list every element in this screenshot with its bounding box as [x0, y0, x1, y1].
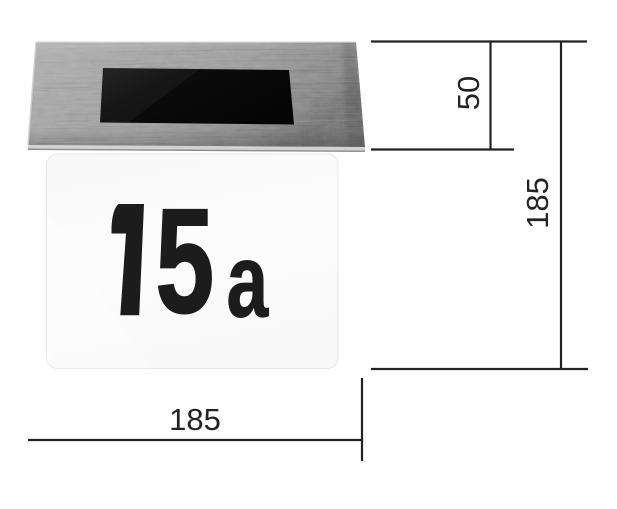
svg-text:50: 50: [451, 76, 486, 110]
svg-text:185: 185: [169, 402, 221, 437]
svg-text:a: a: [227, 223, 270, 339]
svg-text:5: 5: [156, 178, 215, 344]
svg-text:185: 185: [520, 177, 555, 229]
